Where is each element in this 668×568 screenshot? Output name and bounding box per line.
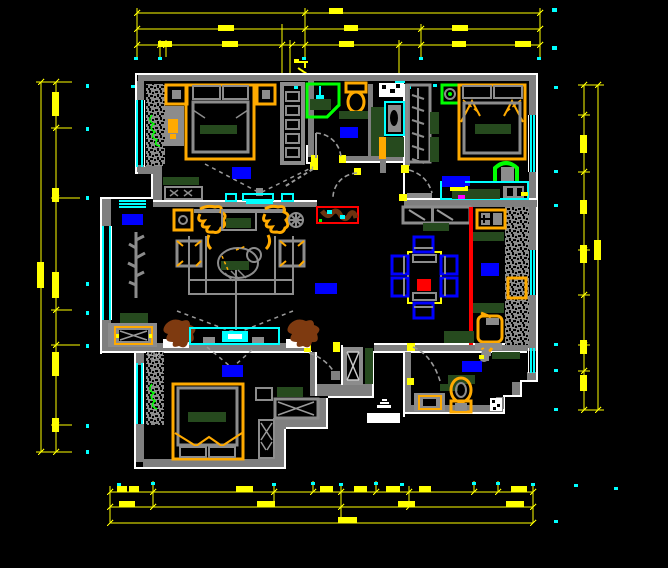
svg-text:只K: 只K — [146, 351, 161, 361]
